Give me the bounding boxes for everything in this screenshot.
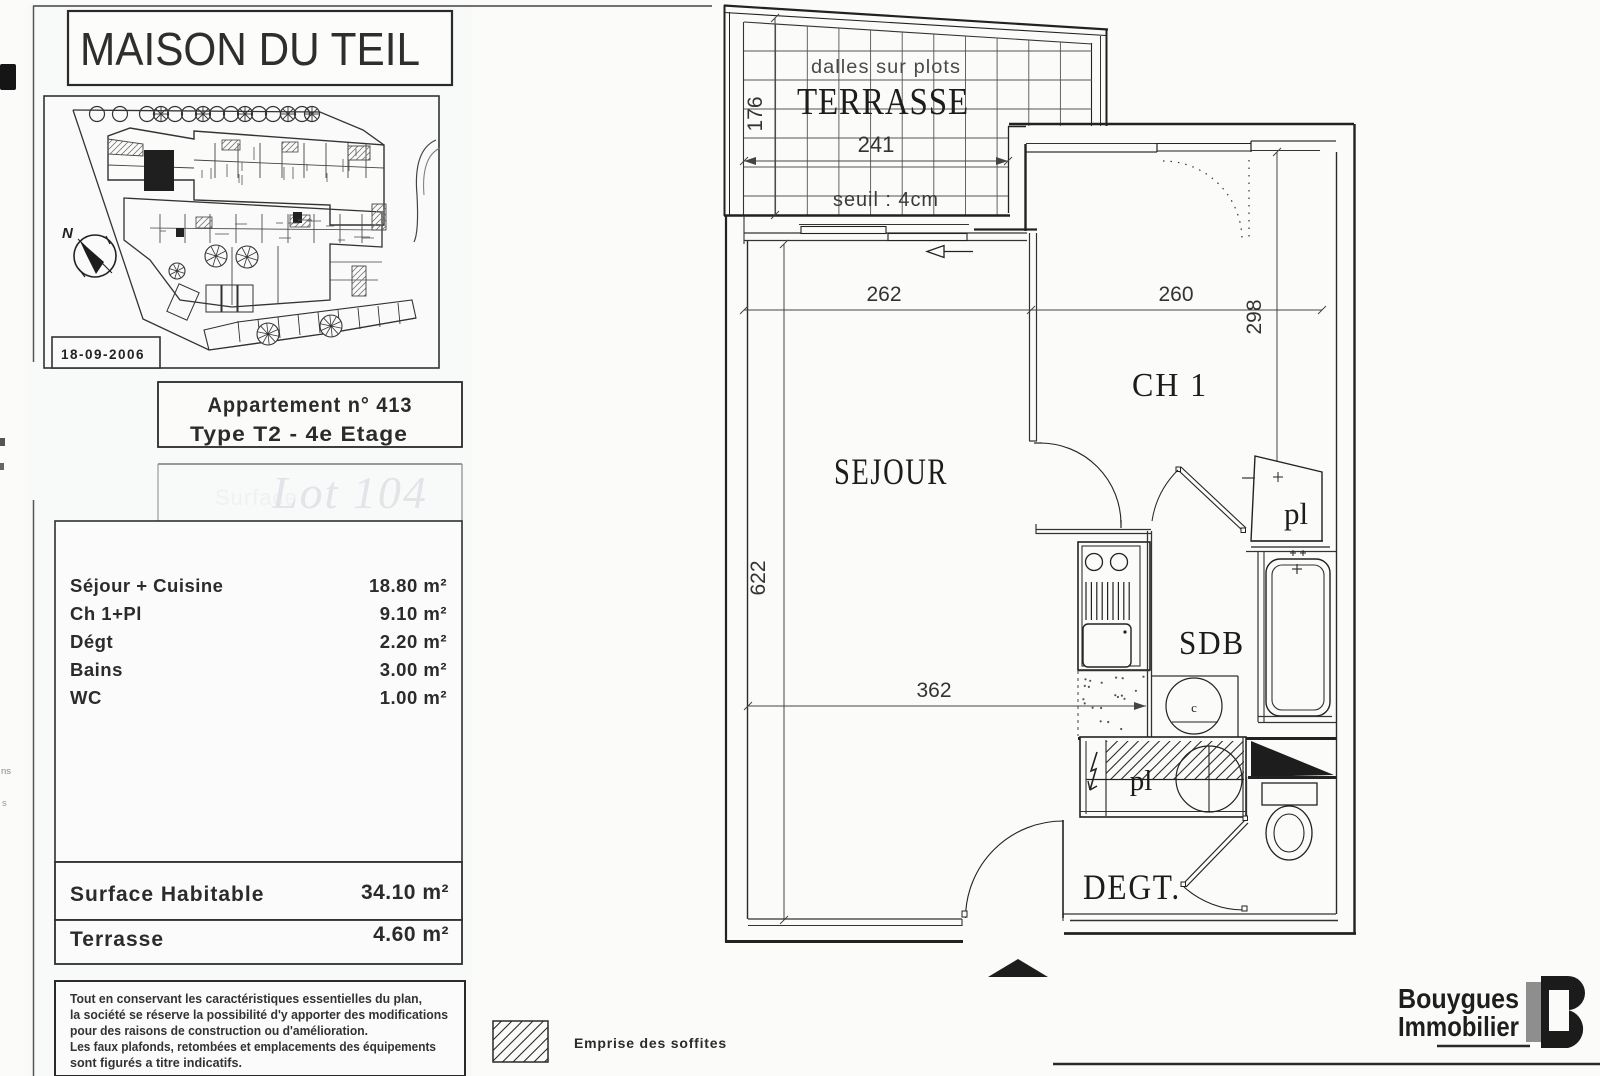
svg-text:34.10 m²: 34.10 m²: [361, 881, 449, 904]
svg-text:DEGT.: DEGT.: [1083, 867, 1181, 907]
svg-text:9.10 m²: 9.10 m²: [380, 603, 447, 624]
svg-text:SEJOUR: SEJOUR: [834, 452, 948, 493]
svg-text:Bains: Bains: [70, 659, 123, 680]
svg-text:Les faux plafonds, retombées e: Les faux plafonds, retombées et emplacem…: [70, 1040, 436, 1054]
svg-text:N: N: [62, 225, 74, 242]
svg-text:2.20 m²: 2.20 m²: [380, 631, 447, 652]
svg-text:18-09-2006: 18-09-2006: [61, 347, 145, 362]
svg-text:262: 262: [866, 283, 901, 306]
svg-text:Type T2 - 4e Etage: Type T2 - 4e Etage: [190, 423, 408, 446]
svg-text:Dégt: Dégt: [70, 631, 113, 652]
svg-text:WC: WC: [70, 687, 102, 708]
svg-text:la société se réserve la possi: la société se réserve la possibilité d'y…: [70, 1008, 448, 1022]
svg-text:622: 622: [747, 560, 770, 595]
svg-text:seuil : 4cm: seuil : 4cm: [833, 189, 939, 211]
svg-text:s: s: [2, 798, 7, 809]
svg-text:dalles sur plots: dalles sur plots: [811, 57, 961, 78]
svg-text:260: 260: [1158, 283, 1193, 306]
svg-text:Appartement n° 413: Appartement n° 413: [208, 394, 413, 417]
svg-text:Ch 1+Pl: Ch 1+Pl: [70, 603, 142, 624]
svg-text:Surface: Surface: [215, 485, 298, 510]
svg-text:Séjour + Cuisine: Séjour + Cuisine: [70, 575, 223, 596]
svg-text:Emprise des soffites: Emprise des soffites: [574, 1035, 727, 1051]
svg-text:ns: ns: [1, 766, 11, 777]
svg-text:sont figurés a titre indicatif: sont figurés a titre indicatifs.: [70, 1056, 242, 1070]
svg-text:241: 241: [858, 132, 895, 157]
svg-text:18.80 m²: 18.80 m²: [369, 575, 447, 596]
svg-text:MAISON DU TEIL: MAISON DU TEIL: [80, 23, 420, 75]
svg-text:4.60 m²: 4.60 m²: [373, 923, 449, 946]
svg-text:Surface Habitable: Surface Habitable: [70, 883, 264, 906]
svg-text:Bouygues: Bouygues: [1398, 983, 1519, 1014]
svg-text:Terrasse: Terrasse: [70, 928, 164, 951]
svg-text:pl: pl: [1130, 765, 1153, 797]
svg-text:pl: pl: [1284, 496, 1308, 531]
svg-text:1.00 m²: 1.00 m²: [380, 687, 447, 708]
svg-text:c: c: [1191, 700, 1197, 715]
svg-text:SDB: SDB: [1179, 625, 1245, 662]
svg-text:pour des raisons de constructi: pour des raisons de construction ou d'am…: [70, 1024, 368, 1038]
svg-text:3.00 m²: 3.00 m²: [380, 659, 447, 680]
svg-text:298: 298: [1243, 299, 1266, 334]
svg-text:176: 176: [744, 96, 767, 131]
svg-text:Tout en conservant les caracté: Tout en conservant les caractéristiques …: [70, 992, 422, 1006]
svg-text:CH 1: CH 1: [1132, 367, 1208, 404]
svg-text:TERRASSE: TERRASSE: [797, 81, 969, 123]
svg-text:362: 362: [916, 679, 951, 702]
svg-text:Immobilier: Immobilier: [1398, 1011, 1519, 1042]
